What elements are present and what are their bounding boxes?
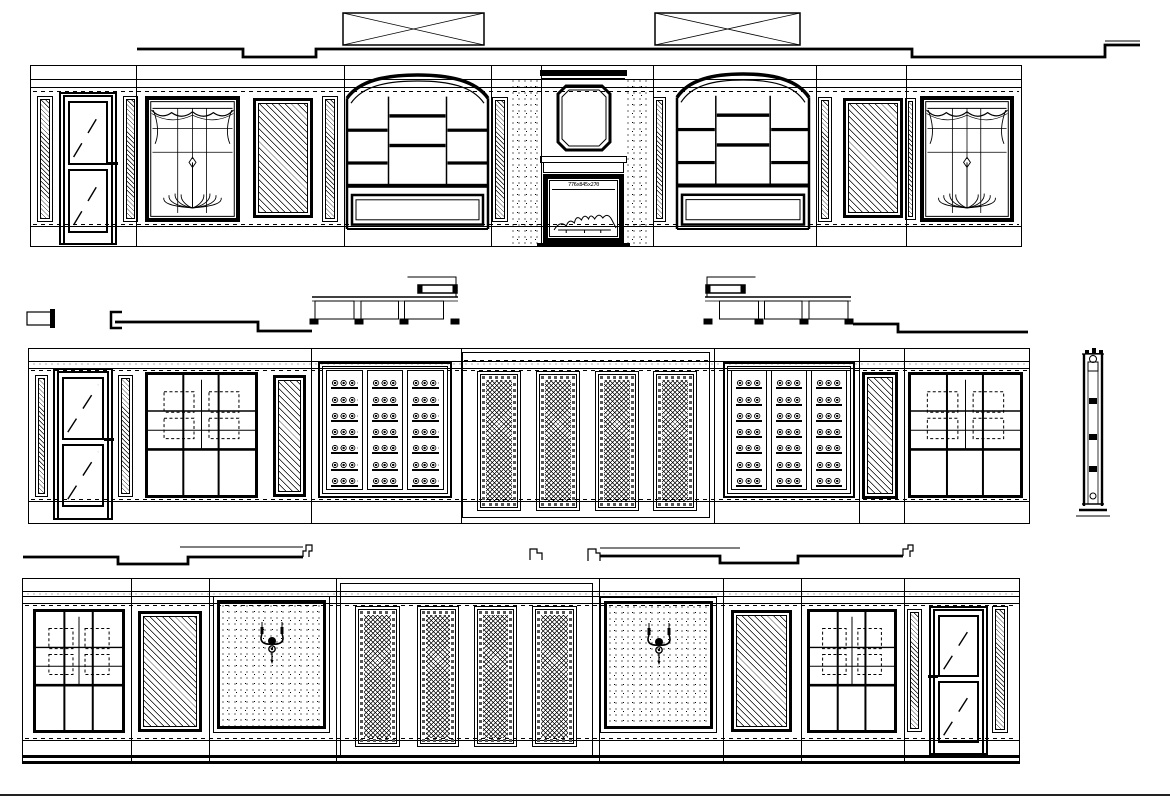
firebox: 776x845x270 — [543, 174, 624, 243]
wine-bottles-row — [412, 461, 439, 469]
wine-bottles-row — [776, 444, 802, 452]
curtain-window — [145, 96, 240, 222]
door — [53, 368, 113, 520]
wine-shelf — [412, 438, 439, 454]
pilaster — [322, 96, 338, 222]
hatch-panel — [273, 375, 306, 497]
wall-bay-seam — [336, 579, 337, 761]
wine-bottles-row — [412, 412, 439, 420]
wine-bottles-row — [372, 444, 399, 452]
wall-bay-seam — [816, 66, 817, 246]
wine-shelf — [776, 422, 802, 438]
wine-shelf — [412, 471, 439, 487]
fan-ornament-icon — [164, 157, 222, 208]
wall-sconce-icon — [641, 619, 677, 671]
elevation-top: 776x845x270 — [30, 65, 1022, 247]
wine-bottles-row — [776, 461, 802, 469]
wall-bay-seam — [904, 579, 905, 761]
wine-bottles-row — [816, 412, 842, 420]
wine-shelf — [412, 389, 439, 405]
wine-shelf — [412, 406, 439, 422]
wine-bottles-row — [412, 379, 439, 387]
wine-bottles-row — [331, 461, 358, 469]
mid-right-line — [853, 324, 1028, 332]
fire-logs-icon — [552, 208, 617, 234]
elevation-bottom — [22, 578, 1020, 764]
wine-bottles-row — [736, 396, 762, 404]
wine-shelf — [736, 406, 762, 422]
grid-window — [145, 372, 258, 498]
bottom-right-hook — [588, 549, 600, 561]
wine-bottles-row — [372, 461, 399, 469]
wine-shelf — [816, 422, 842, 438]
hatch-panel — [253, 98, 313, 218]
lattice-door — [532, 606, 577, 747]
wine-bottles-row — [412, 428, 439, 436]
door-handle — [928, 675, 938, 678]
wine-bottles-row — [372, 396, 399, 404]
wine-shelf — [372, 454, 399, 470]
sconce-panel — [213, 596, 330, 733]
wine-bottles-row — [776, 379, 802, 387]
drawing-canvas: 776x845x270 — [0, 0, 1170, 797]
pilaster — [992, 606, 1008, 733]
door-handle — [108, 162, 118, 165]
pilaster — [818, 97, 832, 222]
wine-bottles-row — [736, 428, 762, 436]
hearth — [537, 243, 630, 247]
mirror-icon — [556, 84, 612, 152]
fan-ornament-icon — [939, 157, 996, 208]
wine-shelf — [816, 373, 842, 389]
wine-shelf — [372, 422, 399, 438]
hatch-panel — [862, 372, 898, 499]
wall-sconce-icon — [254, 618, 290, 670]
ceiling-beam-right — [655, 13, 800, 45]
wine-bottles-row — [776, 396, 802, 404]
stipple-col — [625, 78, 650, 245]
grid-window — [908, 372, 1023, 498]
wine-bottles-row — [776, 477, 802, 485]
lattice-door — [595, 371, 639, 511]
wine-shelf — [776, 438, 802, 454]
wine-shelf — [372, 471, 399, 487]
wine-shelf — [331, 373, 358, 389]
door — [59, 92, 117, 245]
wine-shelf — [776, 454, 802, 470]
wine-shelf — [331, 389, 358, 405]
wine-bottles-row — [816, 379, 842, 387]
door-glass-lower — [68, 169, 108, 233]
wine-bottles-row — [736, 444, 762, 452]
hatch-panel — [138, 611, 202, 732]
wine-shelf — [776, 406, 802, 422]
pilaster — [37, 96, 53, 222]
wine-shelf — [331, 454, 358, 470]
wine-bottles-row — [816, 477, 842, 485]
fireplace: 776x845x270 — [540, 70, 627, 247]
wine-shelf — [776, 373, 802, 389]
wine-bottles-row — [412, 444, 439, 452]
wine-bottles-row — [736, 412, 762, 420]
door — [929, 606, 988, 755]
lattice-fretwork — [541, 615, 568, 738]
wine-bottles-row — [372, 428, 399, 436]
door-glass-lower — [938, 681, 979, 743]
wine-shelf — [736, 422, 762, 438]
arch-cabinet — [345, 71, 490, 231]
pilaster — [907, 609, 922, 732]
lattice-fretwork — [662, 380, 688, 502]
wine-bottles-row — [331, 444, 358, 452]
wall-bay-seam — [714, 349, 715, 523]
wine-bottles-row — [331, 477, 358, 485]
wine-bottles-row — [816, 428, 842, 436]
wine-shelf — [736, 438, 762, 454]
wall-bay-seam — [859, 349, 860, 523]
wine-shelf — [816, 471, 842, 487]
wine-shelf — [412, 422, 439, 438]
wine-bottles-row — [331, 428, 358, 436]
section-bracket — [111, 312, 122, 328]
mid-left-line — [115, 322, 312, 331]
wine-shelf — [816, 454, 842, 470]
wine-shelf — [816, 406, 842, 422]
door-glass-upper — [68, 101, 108, 165]
pilaster — [123, 96, 138, 222]
page-bottom-edge — [0, 794, 1170, 796]
wine-bottles-row — [412, 396, 439, 404]
wine-shelf — [331, 471, 358, 487]
curtain-window — [920, 96, 1014, 222]
lattice-door — [417, 606, 459, 747]
lattice-door — [474, 606, 517, 747]
bottom-left-thick — [23, 557, 303, 564]
grid-window — [807, 609, 897, 733]
lattice-fretwork — [426, 615, 450, 738]
wall-bay-seam — [131, 579, 132, 761]
pilaster — [653, 97, 666, 222]
bottom-right-thick — [600, 556, 903, 563]
wine-rack — [318, 362, 452, 498]
wine-rack-column — [326, 370, 363, 490]
lattice-fretwork — [483, 615, 508, 738]
wine-shelf — [776, 471, 802, 487]
bottom-left-hook — [303, 545, 312, 557]
wine-bottles-row — [736, 477, 762, 485]
grid-window — [33, 609, 125, 733]
wine-shelf — [372, 438, 399, 454]
lattice-fretwork — [364, 615, 391, 738]
wine-rack-column — [811, 370, 847, 490]
wine-bottles-row — [776, 412, 802, 420]
ceiling-beam-left — [343, 13, 484, 45]
wine-shelf — [816, 389, 842, 405]
top-ceiling-line — [137, 45, 1140, 57]
coffered-soffit-section — [704, 277, 853, 324]
wine-rack-column — [731, 370, 767, 490]
column-section-detail — [1076, 346, 1110, 524]
wine-bottles-row — [331, 412, 358, 420]
wine-shelf — [776, 389, 802, 405]
wall-bay-seam — [801, 579, 802, 761]
wine-shelf — [736, 373, 762, 389]
bottom-mid-hook — [530, 549, 542, 560]
wine-bottles-row — [816, 461, 842, 469]
wall-bay-seam — [209, 579, 210, 761]
wine-bottles-row — [331, 396, 358, 404]
wine-rack — [723, 362, 855, 498]
elevation-middle — [28, 348, 1030, 524]
lattice-fretwork — [604, 380, 630, 502]
lattice-fretwork — [545, 380, 571, 502]
pilaster — [35, 375, 48, 497]
lattice-door — [477, 371, 521, 511]
wine-shelf — [412, 373, 439, 389]
fireplace-size-label: 776x845x270 — [552, 182, 615, 190]
wine-bottles-row — [412, 477, 439, 485]
wine-bottles-row — [331, 379, 358, 387]
wine-bottles-row — [372, 412, 399, 420]
door-glass-upper — [62, 377, 104, 440]
wine-bottles-row — [372, 379, 399, 387]
pilaster — [905, 98, 916, 220]
lattice-door — [355, 606, 400, 747]
pilaster — [492, 97, 508, 222]
wine-shelf — [372, 406, 399, 422]
wine-rack-column — [367, 370, 404, 490]
wine-rack-column — [407, 370, 444, 490]
wine-shelf — [736, 389, 762, 405]
wine-shelf — [736, 454, 762, 470]
lattice-fretwork — [486, 380, 512, 502]
wall-bay-seam — [904, 349, 905, 523]
wine-bottles-row — [816, 396, 842, 404]
wine-shelf — [816, 438, 842, 454]
wine-shelf — [331, 422, 358, 438]
wine-rack-column — [771, 370, 807, 490]
wine-bottles-row — [736, 461, 762, 469]
door-handle — [104, 438, 114, 441]
wine-bottles-row — [372, 477, 399, 485]
door-glass-lower — [62, 444, 104, 507]
wall-bay-seam — [723, 579, 724, 761]
hatch-panel — [843, 98, 903, 218]
pilaster — [118, 375, 133, 497]
wine-shelf — [412, 454, 439, 470]
wine-bottles-row — [776, 428, 802, 436]
wine-shelf — [372, 373, 399, 389]
arch-cabinet — [675, 70, 811, 231]
sconce-panel — [600, 597, 717, 733]
lattice-door — [653, 371, 697, 511]
wine-bottles-row — [816, 444, 842, 452]
bottom-right-end-hook — [903, 545, 913, 557]
hatch-panel — [731, 610, 792, 732]
wine-shelf — [372, 389, 399, 405]
wine-shelf — [331, 406, 358, 422]
stipple-col — [510, 78, 540, 245]
wall-bay-seam — [311, 349, 312, 523]
section-cut-symbol — [27, 309, 55, 328]
lattice-door — [536, 371, 580, 511]
wine-shelf — [331, 438, 358, 454]
wine-shelf — [736, 471, 762, 487]
coffered-soffit-section — [310, 277, 459, 324]
wine-bottles-row — [736, 379, 762, 387]
door-glass-upper — [938, 615, 979, 677]
